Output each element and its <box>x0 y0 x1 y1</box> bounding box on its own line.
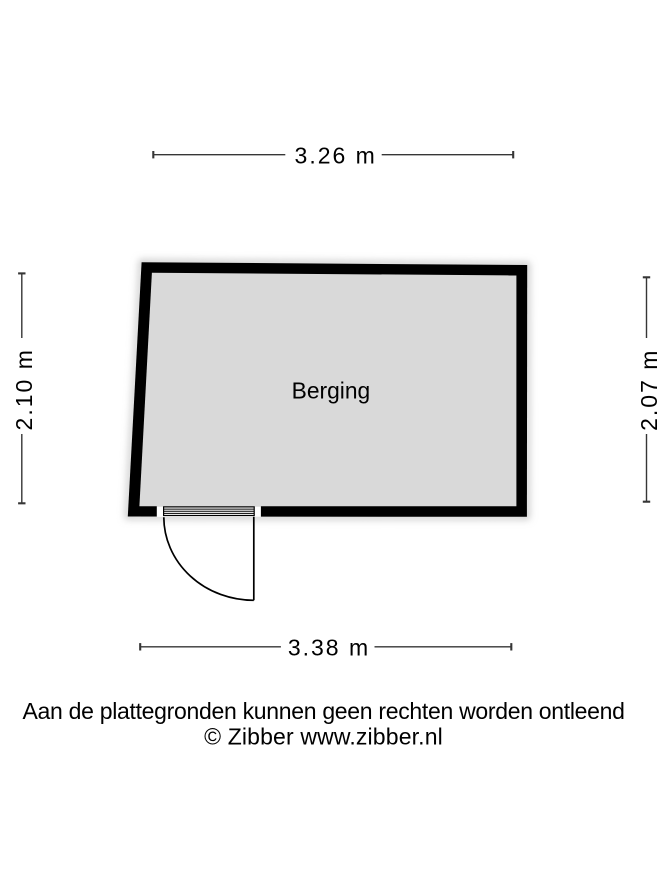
svg-text:Aan de plattegronden kunnen ge: Aan de plattegronden kunnen geen rechten… <box>23 698 625 724</box>
svg-text:© Zibber www.zibber.nl: © Zibber www.zibber.nl <box>204 723 443 749</box>
svg-text:2.07 m: 2.07 m <box>636 349 662 431</box>
svg-text:3.38 m: 3.38 m <box>288 634 370 660</box>
svg-text:3.26 m: 3.26 m <box>295 142 377 168</box>
svg-text:2.10 m: 2.10 m <box>11 348 37 430</box>
svg-text:Berging: Berging <box>292 378 371 404</box>
